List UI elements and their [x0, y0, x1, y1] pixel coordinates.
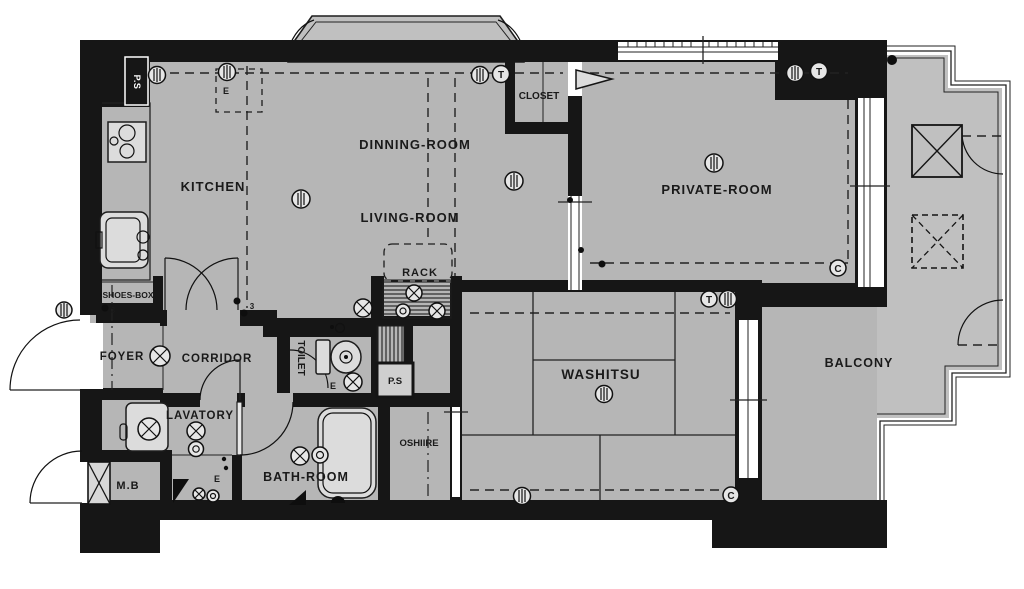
- label-e-utility: E: [214, 474, 220, 484]
- label-kitchen: KITCHEN: [181, 179, 246, 194]
- label-bath-room: BATH-ROOM: [263, 470, 349, 484]
- wall-rack-left: [371, 276, 384, 318]
- tv-outlet-letter: T: [498, 70, 504, 81]
- floor-plan: T T T C C P.S KITCHEN DINNING-ROOM L: [0, 0, 1024, 589]
- label-foyer: FOYER: [100, 351, 145, 363]
- wall-washitsu-top: [455, 280, 762, 292]
- wall-toilet-top: [263, 318, 377, 337]
- kitchen-sink: [96, 212, 149, 268]
- wall-living-private: [568, 95, 582, 196]
- label-e-kitchen: E: [223, 86, 229, 96]
- label-balcony: BALCONY: [825, 356, 894, 370]
- wall-closet-bottom: [505, 122, 582, 134]
- label-washitsu: WASHITSU: [561, 367, 640, 382]
- wall-lavatory-bath-divider: [232, 455, 242, 505]
- wall-mb-top: [80, 450, 172, 462]
- label-ps-mid: P.S: [388, 376, 402, 387]
- label-private-room: PRIVATE-ROOM: [661, 182, 772, 197]
- wall-bath-right: [378, 400, 390, 505]
- label-e-toilet: E: [330, 381, 336, 391]
- meter-box-fixture: [88, 462, 110, 504]
- label-toilet: TOILET: [295, 340, 306, 375]
- label-oshiire: OSHIIRE: [399, 438, 438, 449]
- wall-duct-right: [404, 324, 413, 363]
- label-meter-box: M.B: [116, 480, 139, 492]
- wall-corridor-top-left: [160, 310, 167, 326]
- tv-outlet-letter: T: [816, 67, 822, 78]
- wall-bottom: [80, 500, 887, 520]
- floor-plan-page: T T T C C P.S KITCHEN DINNING-ROOM L: [0, 0, 1024, 589]
- label-ps-top: P.S: [132, 75, 142, 90]
- label-corridor: CORRIDOR: [182, 353, 253, 365]
- label-rack: RACK: [402, 267, 438, 279]
- label-hinge-3a: 3: [111, 306, 116, 315]
- label-dinning-room: DINNING-ROOM: [359, 137, 471, 152]
- balcony-corner-post: [887, 55, 897, 65]
- entrance-door: [10, 320, 80, 390]
- cable-outlet-letter: C: [834, 264, 841, 275]
- label-shoes-box: SHOES-BOX: [102, 290, 153, 300]
- wall-toilet-left: [277, 337, 290, 393]
- wall-left-upper: [80, 40, 102, 315]
- duct-hatch: [377, 326, 404, 363]
- wall-bottom-protrusion: [712, 520, 887, 548]
- label-hinge-3b: 3: [250, 302, 255, 311]
- wall-corridor-bottom-b: [293, 393, 378, 407]
- mb-door: [30, 451, 82, 503]
- label-living-room: LIVING-ROOM: [360, 210, 459, 225]
- label-closet: CLOSET: [519, 91, 560, 102]
- label-lavatory: LAVATORY: [166, 410, 234, 422]
- tv-outlet-letter: T: [706, 295, 712, 306]
- wall-foyer-bottom: [96, 388, 163, 400]
- cable-outlet-letter: C: [727, 491, 734, 502]
- stove: [108, 122, 146, 162]
